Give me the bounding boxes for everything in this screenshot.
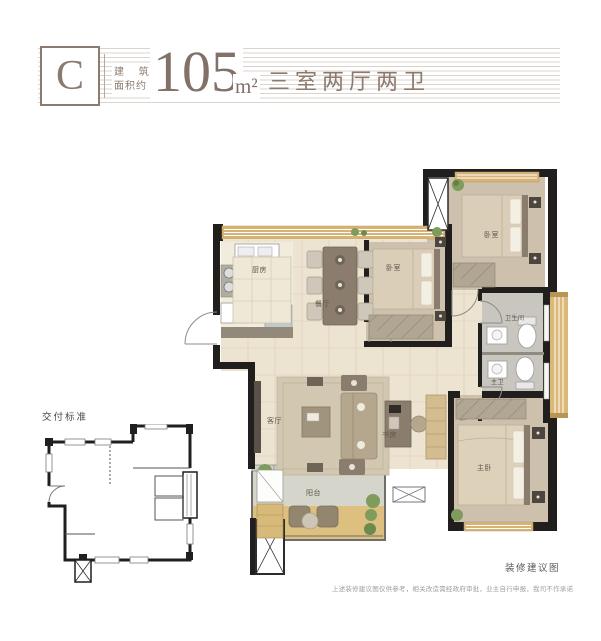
floorplan-page: C 建 筑 面积约 105 m² 三室两厅两卫 xyxy=(0,0,601,641)
area-value: 105 xyxy=(150,42,243,102)
disclaimer-text: 上述装修建议图仅供参考，相关改造需经政府审批，业主自行申报，我司不作承诺 xyxy=(332,583,566,593)
room-label-bedroom-middle: 卧室 xyxy=(386,263,401,273)
room-label-master-bathroom: 主卫 xyxy=(491,377,504,386)
area-prefix-line1: 建 筑 xyxy=(114,66,155,80)
decoration-suggestion-caption: 装修建议图 xyxy=(505,560,560,574)
area-unit: m² xyxy=(233,74,260,99)
header-divider xyxy=(104,54,105,98)
unit-letter-box: C xyxy=(40,46,100,106)
layout-summary: 三室两厅两卫 xyxy=(268,64,430,96)
main-floor-plan xyxy=(207,165,592,590)
room-label-bathroom: 卫生间 xyxy=(505,313,525,322)
unit-letter: C xyxy=(56,55,84,97)
room-label-dining: 餐厅 xyxy=(315,299,330,309)
secondary-plan-title: 交付标准 xyxy=(42,409,88,423)
room-label-living: 客厅 xyxy=(267,416,282,426)
room-label-master-bedroom: 主卧 xyxy=(477,463,492,473)
room-label-kitchen: 厨房 xyxy=(252,265,267,275)
room-label-study: 书房 xyxy=(382,430,397,440)
room-label-bedroom-corner: 卧室 xyxy=(484,230,499,240)
room-label-balcony: 阳台 xyxy=(306,488,321,498)
secondary-floor-plan xyxy=(35,424,210,604)
area-prefix-line2: 面积约 xyxy=(114,80,155,94)
